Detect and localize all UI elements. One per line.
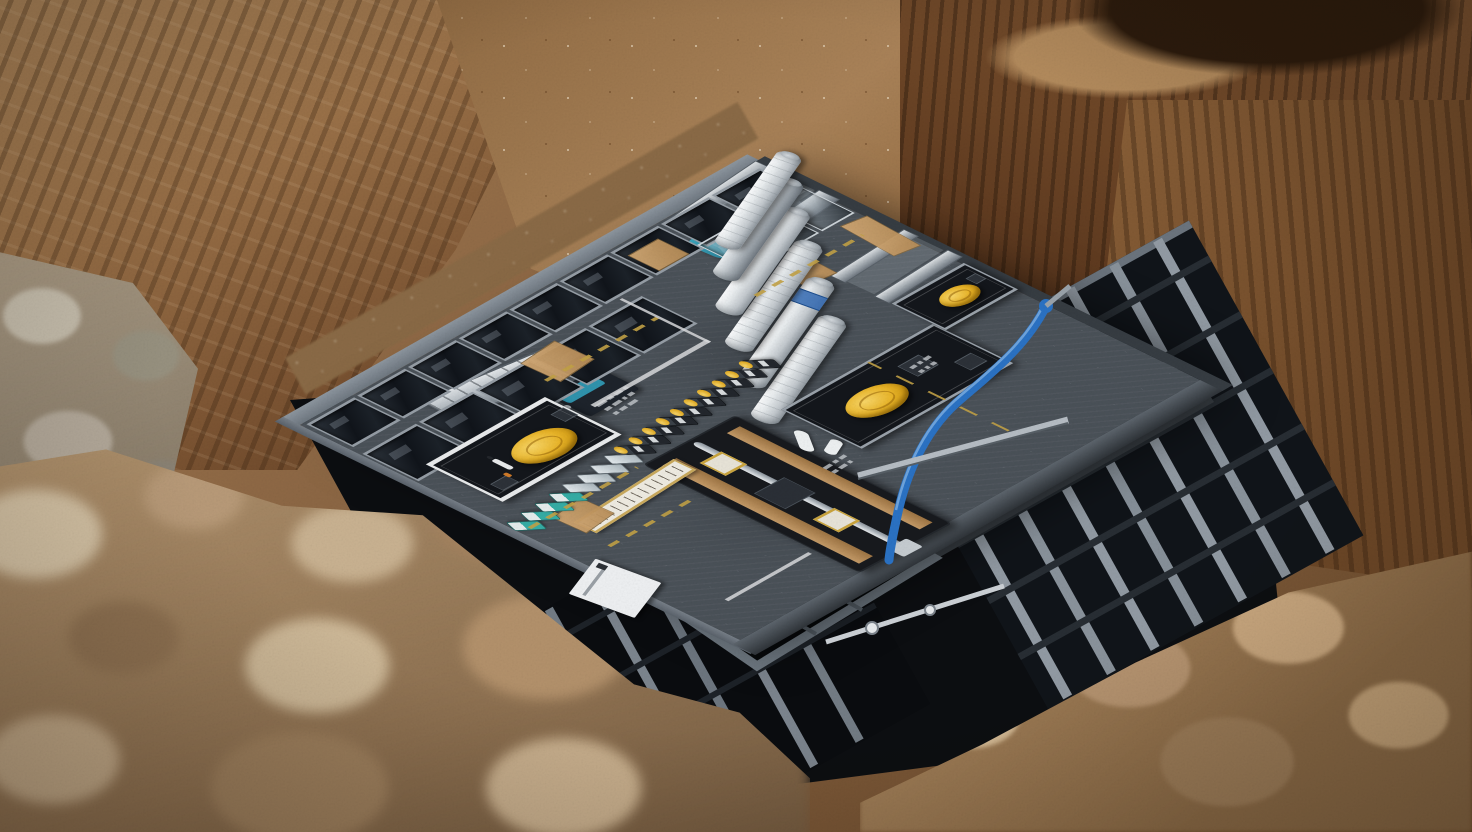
rod-joint [925,605,935,615]
ratchet-lever [1046,286,1070,306]
silver-conduit [858,420,1068,476]
steel-tie-rod [826,586,1004,642]
rod-joint [866,622,878,634]
excavation-site-photo [0,0,1472,832]
